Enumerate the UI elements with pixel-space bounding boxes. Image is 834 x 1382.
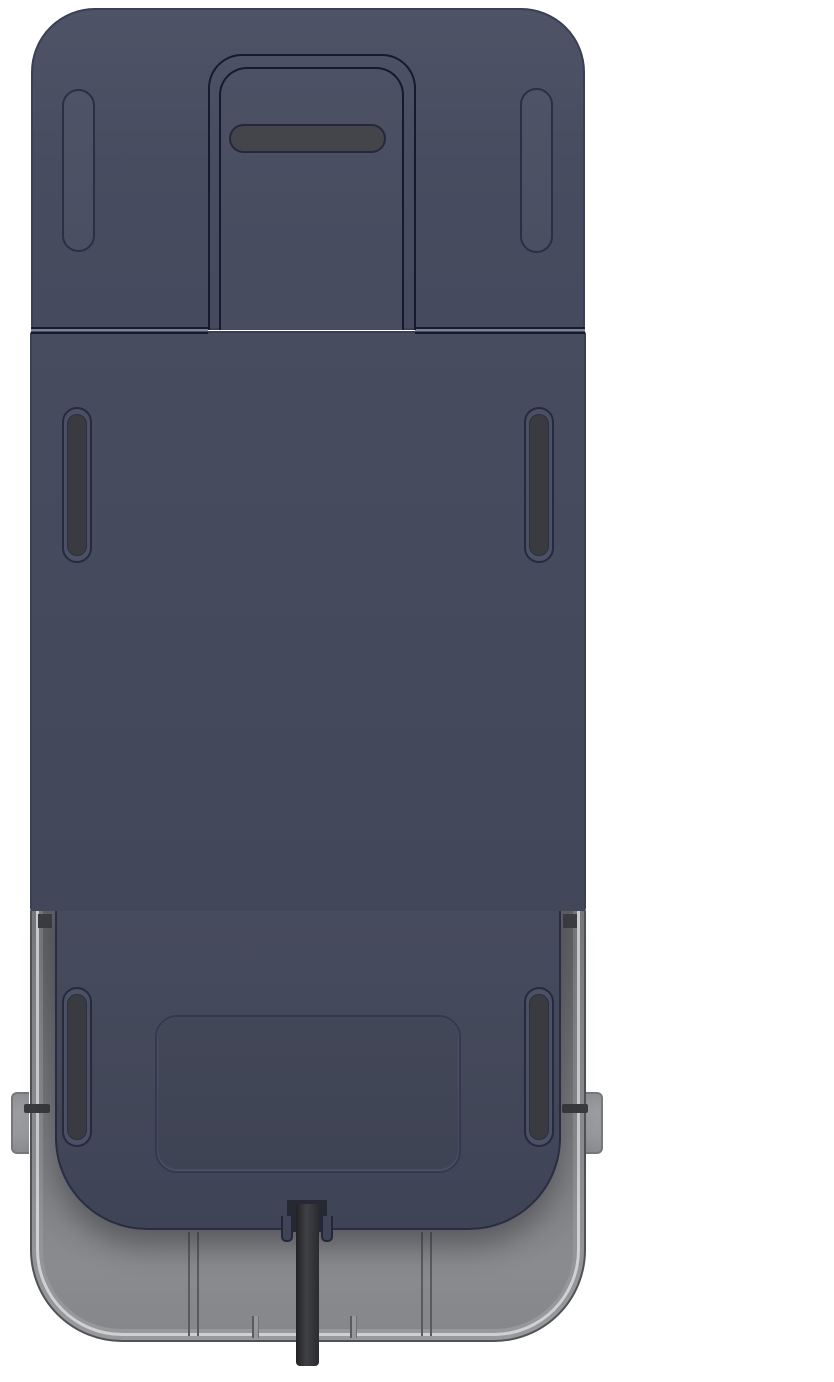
peg-pin-right: [562, 1104, 588, 1113]
tray-seam-left-b: [197, 1232, 199, 1336]
latch-tongue-slot: [229, 124, 386, 153]
side-peg-right: [585, 1092, 603, 1154]
grip-slot-mid-right: [524, 407, 554, 563]
tray-clip-right: [563, 914, 577, 928]
grip-slot-bottom-right-inset: [529, 994, 549, 1140]
top-pill-left: [62, 89, 95, 252]
tray-clip-left: [38, 914, 52, 928]
grip-slot-mid-left-inset: [67, 414, 87, 556]
tray-seam-right-b: [430, 1232, 432, 1336]
grip-slot-bottom-right: [524, 987, 554, 1147]
cable-guide-tab-right: [321, 1216, 333, 1242]
housing-upper: [30, 331, 586, 911]
tray-rim-tick-right: [350, 1316, 357, 1338]
tray-rim-tick-left: [252, 1316, 259, 1338]
cover-seam-left: [31, 327, 208, 334]
mounting-plate-recess: [155, 1015, 461, 1173]
grip-slot-mid-left: [62, 407, 92, 563]
charging-cable: [296, 1204, 319, 1366]
top-pill-right: [520, 88, 553, 253]
grip-slot-bottom-left-inset: [67, 994, 87, 1140]
latch-tongue: [219, 67, 404, 330]
grip-slot-mid-right-inset: [529, 414, 549, 556]
tray-seam-left-a: [188, 1232, 190, 1336]
side-peg-left: [11, 1092, 29, 1154]
peg-pin-left: [24, 1104, 50, 1113]
tray-seam-right-a: [421, 1232, 423, 1336]
product-render-canvas: [0, 0, 834, 1382]
grip-slot-bottom-left: [62, 987, 92, 1147]
cover-seam-right: [415, 327, 585, 334]
cable-guide-tab-left: [281, 1216, 293, 1242]
